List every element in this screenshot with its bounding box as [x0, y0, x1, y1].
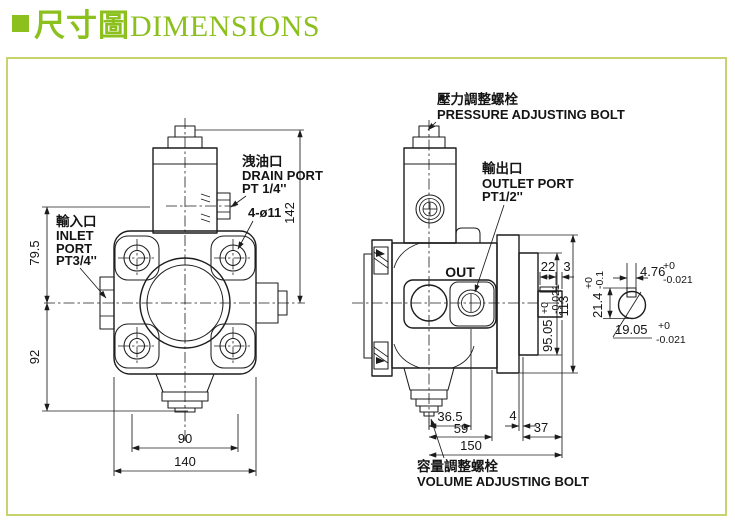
svg-text:壓力調整螺栓: 壓力調整螺栓 [437, 91, 518, 107]
dimension-shaft-diameter: 19.05 +0 -0.021 [613, 320, 686, 346]
svg-text:4-ø11: 4-ø11 [248, 205, 281, 220]
side-view: OUT 22 3 [352, 91, 625, 489]
dimension-lower-height: 92 [27, 303, 188, 411]
svg-text:4: 4 [509, 408, 516, 423]
svg-text:輸入口: 輸入口 [56, 213, 97, 229]
svg-text:4.76: 4.76 [640, 264, 665, 279]
svg-text:輸出口: 輸出口 [482, 160, 523, 176]
svg-text:90: 90 [178, 431, 192, 446]
svg-text:22: 22 [541, 259, 555, 274]
svg-text:140: 140 [174, 454, 196, 469]
svg-text:-0.021: -0.021 [656, 334, 686, 346]
svg-text:-0.021: -0.021 [663, 274, 693, 286]
dimension-key-width: 4.76 +0 -0.021 [613, 260, 693, 288]
technical-drawing: 142 79.5 92 90 [0, 0, 735, 528]
svg-text:+0: +0 [663, 260, 675, 272]
bolt-holes-label: 4-ø11 [238, 205, 281, 249]
out-port-panel: OUT [404, 264, 496, 328]
svg-text:92: 92 [27, 350, 42, 364]
bolt-hole [214, 239, 252, 277]
svg-text:PT1/2'': PT1/2'' [482, 189, 523, 204]
pressure-bolt-label: 壓力調整螺栓 PRESSURE ADJUSTING BOLT [428, 91, 625, 130]
svg-text:+0: +0 [658, 320, 670, 332]
inlet-port-label: 輸入口 INLET PORT PT3/4'' [56, 213, 106, 298]
shaft-detail: 4.76 +0 -0.021 21.4 +0 -0.1 19.05 +0 -0.… [583, 260, 693, 346]
svg-text:59: 59 [454, 421, 468, 436]
flange-clip-top [374, 247, 388, 274]
svg-text:洩油口: 洩油口 [242, 153, 283, 169]
svg-text:VOLUME ADJUSTING BOLT: VOLUME ADJUSTING BOLT [417, 474, 589, 489]
svg-text:21.4: 21.4 [590, 293, 605, 318]
surface-finish-marks [201, 194, 210, 222]
flange-clip-bottom [374, 342, 388, 369]
svg-text:PRESSURE ADJUSTING BOLT: PRESSURE ADJUSTING BOLT [437, 107, 625, 122]
rear-cover [519, 253, 538, 355]
svg-text:113: 113 [556, 296, 571, 317]
svg-text:95.05: 95.05 [540, 319, 555, 352]
svg-text:150: 150 [460, 438, 482, 453]
tower-side-tab [456, 228, 480, 243]
svg-text:37: 37 [534, 420, 548, 435]
svg-text:142: 142 [282, 202, 297, 224]
pump-body-side [392, 243, 497, 368]
volume-bolt-label: 容量調整螺栓 VOLUME ADJUSTING BOLT [416, 419, 589, 489]
svg-text:PT 1/4'': PT 1/4'' [242, 181, 286, 196]
drain-port-boss [166, 193, 236, 222]
dimensions-page: 尺寸圖 DIMENSIONS [0, 0, 735, 528]
svg-text:3: 3 [563, 259, 570, 274]
drain-port-label: 洩油口 DRAIN PORT PT 1/4'' [231, 153, 323, 207]
pressure-tower [404, 148, 480, 243]
svg-text:19.05: 19.05 [615, 322, 648, 337]
mounting-flange-side [364, 240, 392, 376]
out-marking: OUT [445, 264, 475, 280]
svg-text:PT3/4'': PT3/4'' [56, 253, 97, 268]
rear-plate [497, 235, 519, 373]
svg-text:79.5: 79.5 [27, 240, 42, 265]
svg-text:-0.1: -0.1 [594, 271, 606, 289]
front-view: 142 79.5 92 90 [27, 118, 323, 476]
shaft-section-circle [619, 292, 646, 319]
outlet-port-label: 輸出口 OUTLET PORT PT1/2'' [475, 160, 574, 292]
svg-text:容量調整螺栓: 容量調整螺栓 [416, 458, 498, 474]
bolt-hole [118, 239, 156, 277]
